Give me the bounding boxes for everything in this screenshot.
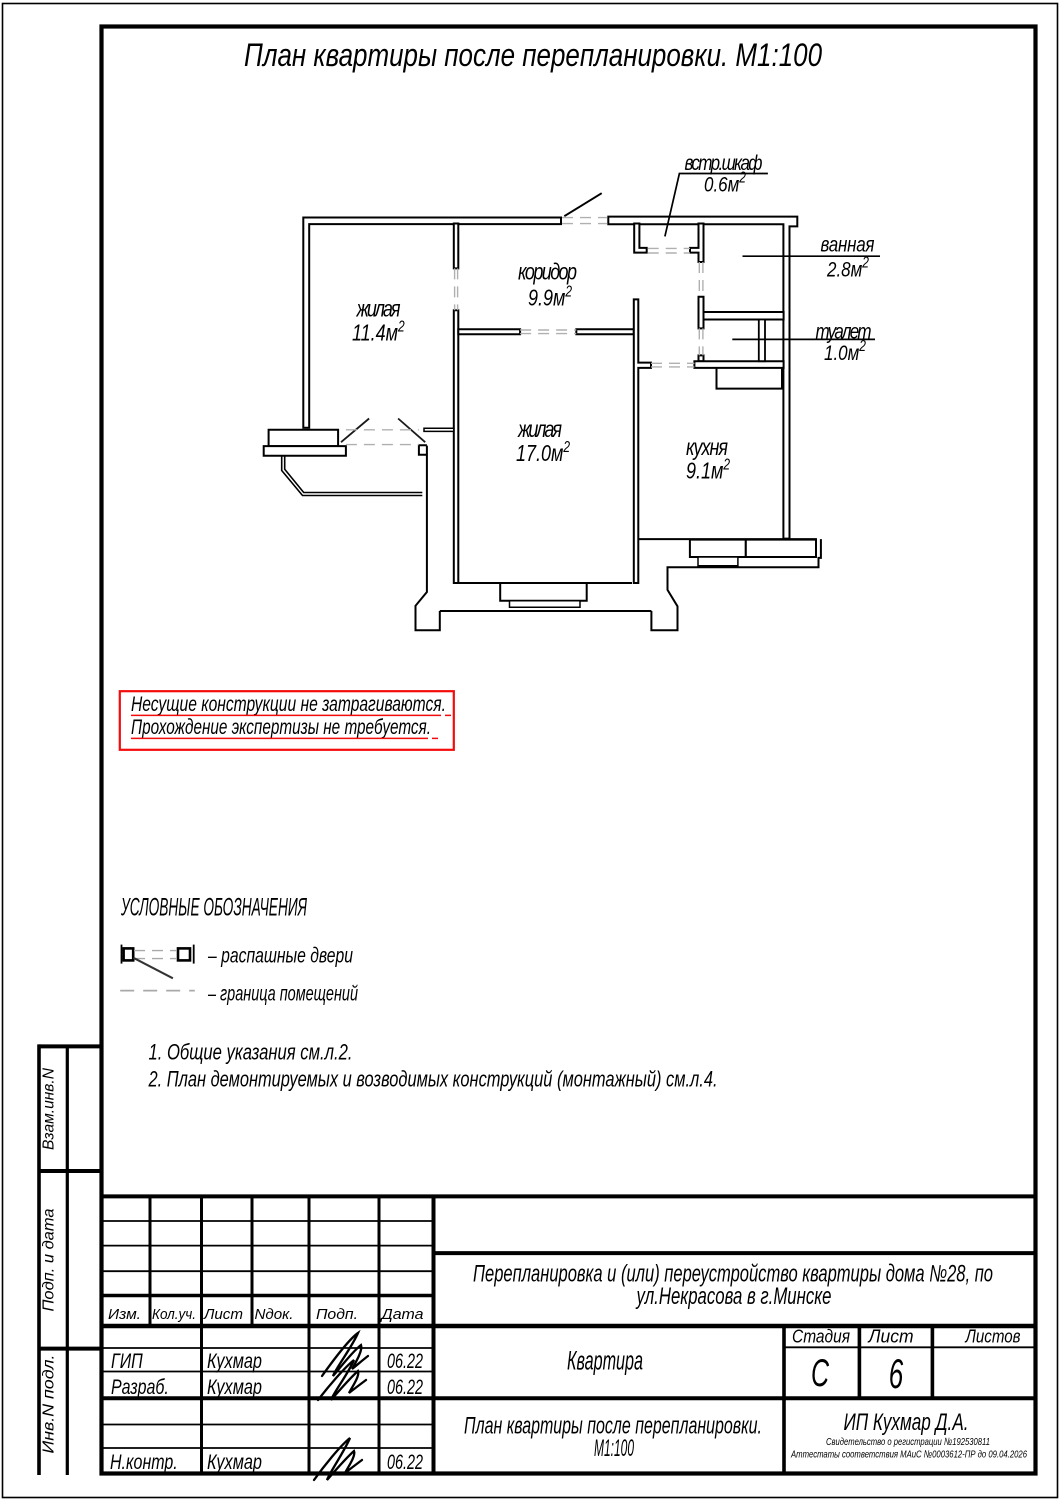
svg-text:УСЛОВНЫЕ ОБОЗНАЧЕНИЯ: УСЛОВНЫЕ ОБОЗНАЧЕНИЯ: [120, 893, 307, 921]
svg-text:1. Общие указания см.л.2.: 1. Общие указания см.л.2.: [149, 1041, 353, 1065]
svg-text:План квартиры после перепланир: План квартиры после перепланировки. М1:1…: [244, 36, 822, 73]
svg-text:кухня: кухня: [686, 435, 728, 461]
svg-text:2.8м2: 2.8м2: [826, 254, 869, 282]
svg-text:Н.контр.: Н.контр.: [110, 1451, 178, 1475]
svg-text:Дата: Дата: [379, 1306, 423, 1323]
svg-text:Лист: Лист: [867, 1326, 913, 1347]
svg-text:Кухмар: Кухмар: [207, 1376, 262, 1400]
svg-text:9.9м2: 9.9м2: [528, 283, 572, 311]
svg-text:коридор: коридор: [518, 260, 577, 286]
svg-text:Прохождение экспертизы не треб: Прохождение экспертизы не требуется.: [131, 715, 431, 739]
svg-text:11.4м2: 11.4м2: [352, 318, 405, 346]
svg-text:Кухмар: Кухмар: [207, 1350, 262, 1374]
svg-text:Взам.инв.N: Взам.инв.N: [41, 1067, 58, 1150]
svg-text:жилая: жилая: [517, 417, 562, 443]
svg-text:ИП Кухмар Д.А.: ИП Кухмар Д.А.: [844, 1408, 969, 1435]
svg-text:1.0м2: 1.0м2: [824, 338, 866, 366]
svg-text:Кол.уч.: Кол.уч.: [152, 1306, 196, 1323]
svg-text:6: 6: [889, 1352, 904, 1398]
svg-text:Подп. и дата: Подп. и дата: [41, 1208, 58, 1311]
svg-text:С: С: [811, 1350, 829, 1394]
svg-text:Свидетельство о регистрации №1: Свидетельство о регистрации №192530811: [826, 1436, 990, 1448]
svg-text:ул.Некрасова в г.Минске: ул.Некрасова в г.Минске: [635, 1283, 832, 1310]
svg-text:Инв.N подл.: Инв.N подл.: [41, 1355, 58, 1454]
svg-text:17.0м2: 17.0м2: [516, 439, 570, 467]
svg-text:жилая: жилая: [356, 297, 401, 323]
svg-text:Аттестаты соответствия МАиС №0: Аттестаты соответствия МАиС №0003612-ПР …: [790, 1449, 1027, 1461]
svg-text:06.22: 06.22: [387, 1376, 423, 1400]
svg-text:Nдок.: Nдок.: [255, 1306, 294, 1323]
svg-text:М1:100: М1:100: [594, 1435, 634, 1462]
svg-text:Квартира: Квартира: [567, 1345, 643, 1375]
svg-text:06.22: 06.22: [387, 1350, 423, 1374]
svg-text:06.22: 06.22: [387, 1451, 423, 1475]
svg-text:Лист: Лист: [203, 1306, 243, 1323]
svg-text:– распашные двери: – распашные двери: [207, 945, 353, 968]
svg-text:9.1м2: 9.1м2: [686, 456, 730, 484]
svg-text:Листов: Листов: [965, 1326, 1021, 1347]
svg-text:Разраб.: Разраб.: [111, 1376, 169, 1400]
svg-text:0.6м2: 0.6м2: [704, 169, 746, 197]
svg-text:Несущие конструкции не затраги: Несущие конструкции не затрагиваются.: [131, 692, 446, 716]
svg-text:– граница помещений: – граница помещений: [207, 983, 358, 1006]
svg-text:Стадия: Стадия: [792, 1326, 850, 1347]
svg-text:Подп.: Подп.: [316, 1306, 358, 1323]
svg-text:Изм.: Изм.: [108, 1306, 141, 1323]
svg-text:Кухмар: Кухмар: [207, 1451, 262, 1475]
svg-text:ГИП: ГИП: [111, 1350, 143, 1374]
svg-text:2. План демонтируемых и возвод: 2. План демонтируемых и возводимых конст…: [148, 1068, 718, 1092]
